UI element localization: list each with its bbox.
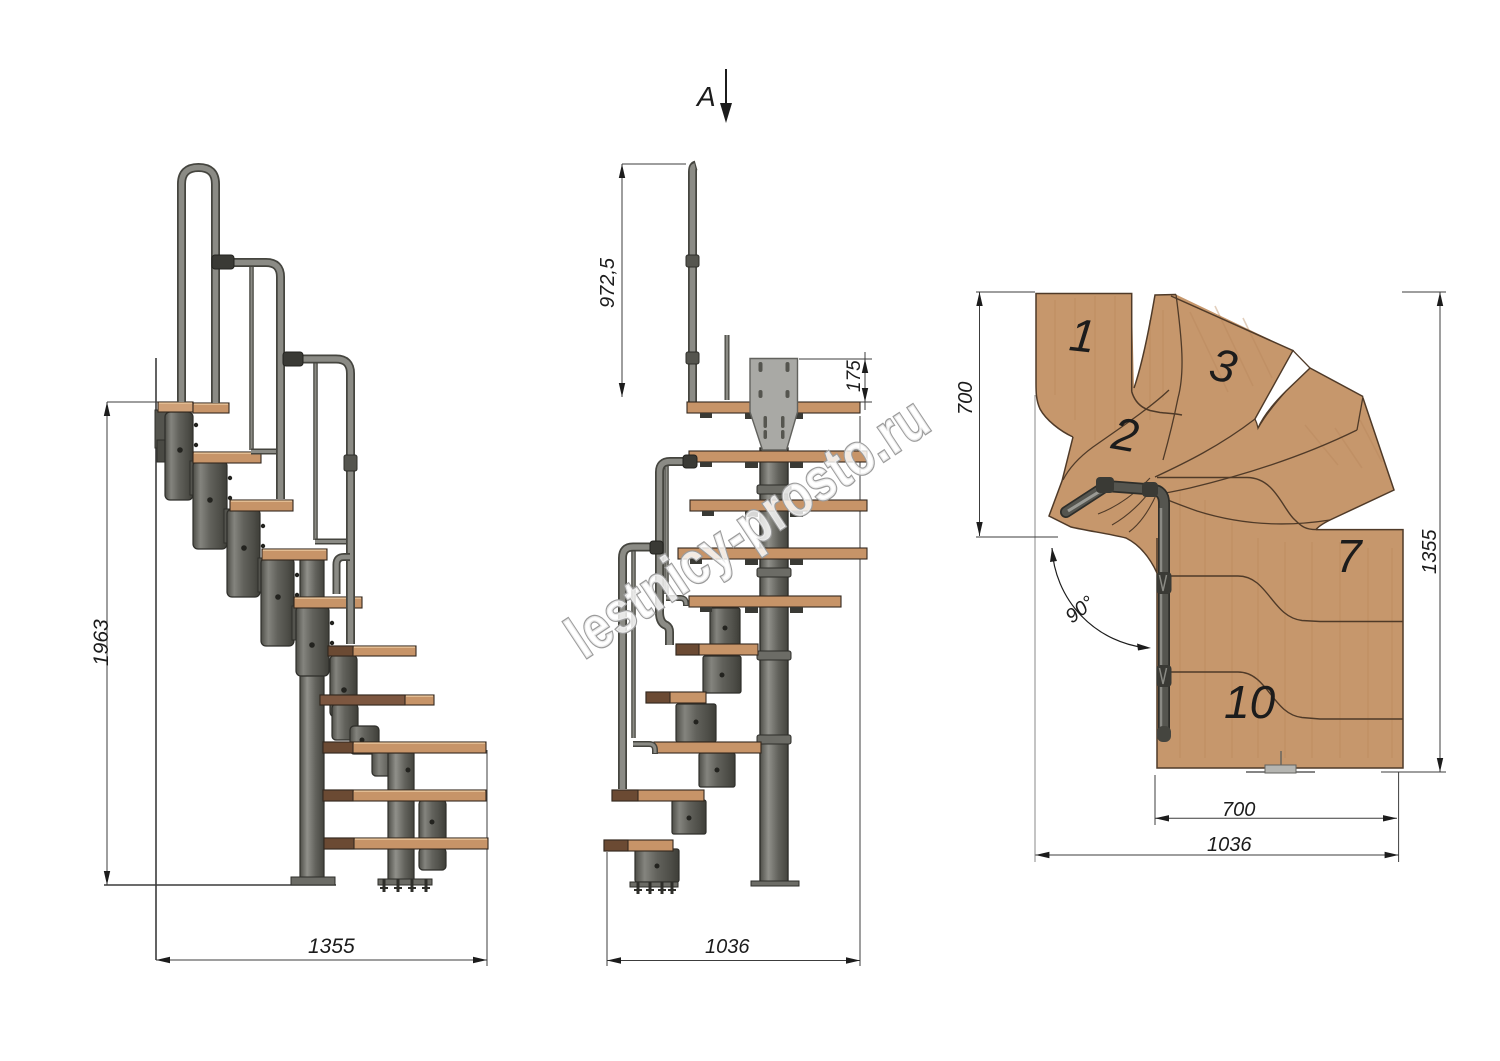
- svg-text:700: 700: [955, 382, 977, 415]
- svg-text:1963: 1963: [90, 619, 113, 666]
- svg-text:1036: 1036: [1207, 834, 1252, 856]
- svg-text:972,5: 972,5: [597, 257, 619, 308]
- svg-text:1036: 1036: [705, 936, 750, 958]
- svg-text:700: 700: [1222, 799, 1255, 821]
- svg-text:A: A: [695, 81, 716, 112]
- svg-text:10: 10: [1224, 676, 1276, 728]
- svg-text:1: 1: [1067, 308, 1098, 362]
- svg-text:7: 7: [1336, 530, 1363, 582]
- svg-text:175: 175: [844, 360, 865, 392]
- svg-text:1355: 1355: [1419, 529, 1441, 574]
- svg-text:1355: 1355: [308, 935, 355, 958]
